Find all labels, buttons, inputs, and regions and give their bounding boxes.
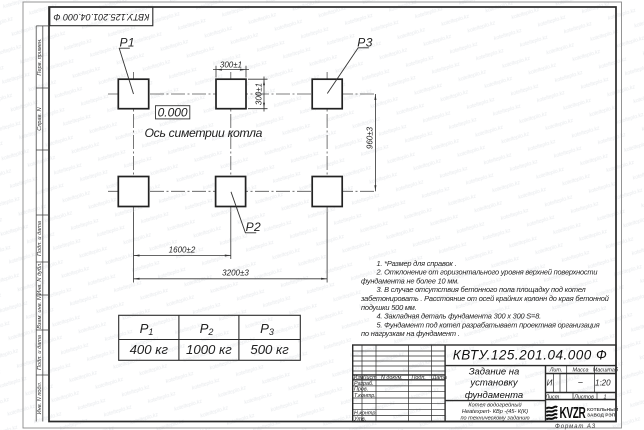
- svg-text:1: 1: [604, 394, 607, 400]
- svg-text:300±1: 300±1: [220, 60, 242, 69]
- svg-text:Формат А3: Формат А3: [555, 424, 596, 430]
- svg-text:И: И: [547, 379, 553, 388]
- svg-text:Подп. и дата: Подп. и дата: [37, 335, 43, 370]
- svg-text:Перв. примен.: Перв. примен.: [37, 38, 43, 75]
- svg-text:0.000: 0.000: [158, 105, 188, 119]
- svg-text:фундамента: фундамента: [465, 390, 523, 401]
- svg-text:Лист: Лист: [544, 394, 559, 400]
- svg-text:P2: P2: [246, 220, 261, 234]
- svg-text:Ось симетрии котла: Ось симетрии котла: [145, 126, 263, 140]
- svg-text:1000 кг: 1000 кг: [186, 342, 232, 357]
- svg-text:5. Фундамент под котел разраб: 5. Фундамент под котел разрабатывает про…: [377, 320, 600, 329]
- svg-text:400 кг: 400 кг: [130, 342, 169, 357]
- svg-text:N докум.: N докум.: [381, 375, 403, 381]
- svg-text:фундамента не более 10 мм.: фундамента не более 10 мм.: [361, 276, 459, 285]
- svg-text:1. *Размер для справок .: 1. *Размер для справок .: [377, 259, 457, 268]
- svg-text:Подп.: Подп.: [412, 375, 426, 381]
- svg-text:P1: P1: [120, 36, 135, 50]
- svg-text:2. Отклонение от горизонтальн: 2. Отклонение от горизонтального уровня …: [376, 268, 598, 277]
- svg-text:ЗАВОД РЭП: ЗАВОД РЭП: [587, 412, 616, 418]
- svg-text:Задание на: Задание на: [469, 367, 520, 378]
- svg-text:по техническому заданию: по техническому заданию: [460, 416, 530, 422]
- svg-text:по нагрузкам на фундамент .: по нагрузкам на фундамент .: [361, 329, 460, 338]
- svg-text:P3: P3: [357, 35, 372, 49]
- svg-text:Утв.: Утв.: [353, 417, 366, 423]
- svg-text:–: –: [577, 378, 583, 387]
- svg-text:подушки 500 мм.: подушки 500 мм.: [361, 303, 417, 312]
- svg-text:забетонировать . Расстояние о: забетонировать . Расстояние от осей край…: [360, 294, 609, 303]
- svg-text:КВТУ.125.201.04.000 Ф: КВТУ.125.201.04.000 Ф: [453, 347, 607, 362]
- svg-text:Лит.: Лит.: [549, 368, 563, 374]
- svg-text:3. В случае отсутствия бетонн: 3. В случае отсутствия бетонного пола пл…: [377, 285, 587, 294]
- svg-text:Масса: Масса: [573, 368, 589, 374]
- svg-text:Масштаб: Масштаб: [593, 368, 619, 374]
- svg-text:Взам. инв. N: Взам. инв. N: [37, 295, 43, 329]
- svg-text:Т.контр.: Т.контр.: [354, 393, 376, 399]
- svg-text:Дата: Дата: [432, 375, 447, 381]
- svg-text:Листов: Листов: [573, 394, 594, 400]
- svg-text:4. Закладная деталь фундамент: 4. Закладная деталь фундамента 300 х 300…: [377, 312, 542, 321]
- svg-text:500 кг: 500 кг: [250, 342, 289, 357]
- svg-text:КВТУ.125.201.04.000 Ф: КВТУ.125.201.04.000 Ф: [54, 12, 150, 22]
- svg-text:Котел водогрейный: Котел водогрейный: [468, 402, 521, 409]
- svg-text:Heatexpert- КВр -(45- К(К): Heatexpert- КВр -(45- К(К): [462, 409, 528, 415]
- svg-text:KVZR: KVZR: [560, 403, 587, 421]
- svg-text:Инв. N дубл.: Инв. N дубл.: [37, 262, 43, 294]
- svg-text:Н.контр.: Н.контр.: [354, 410, 377, 416]
- svg-text:установку: установку: [469, 378, 519, 389]
- svg-text:3200±3: 3200±3: [222, 269, 249, 278]
- svg-text:Справ. N: Справ. N: [37, 106, 43, 130]
- svg-text:Пров.: Пров.: [354, 387, 368, 393]
- svg-text:1600±2: 1600±2: [169, 245, 196, 254]
- svg-text:300±1: 300±1: [254, 83, 263, 105]
- svg-text:Подп. и дата: Подп. и дата: [37, 221, 43, 256]
- svg-text:960±3: 960±3: [366, 126, 375, 149]
- svg-text:Инв. N подл.: Инв. N подл.: [37, 382, 43, 415]
- svg-text:1:20: 1:20: [595, 379, 611, 388]
